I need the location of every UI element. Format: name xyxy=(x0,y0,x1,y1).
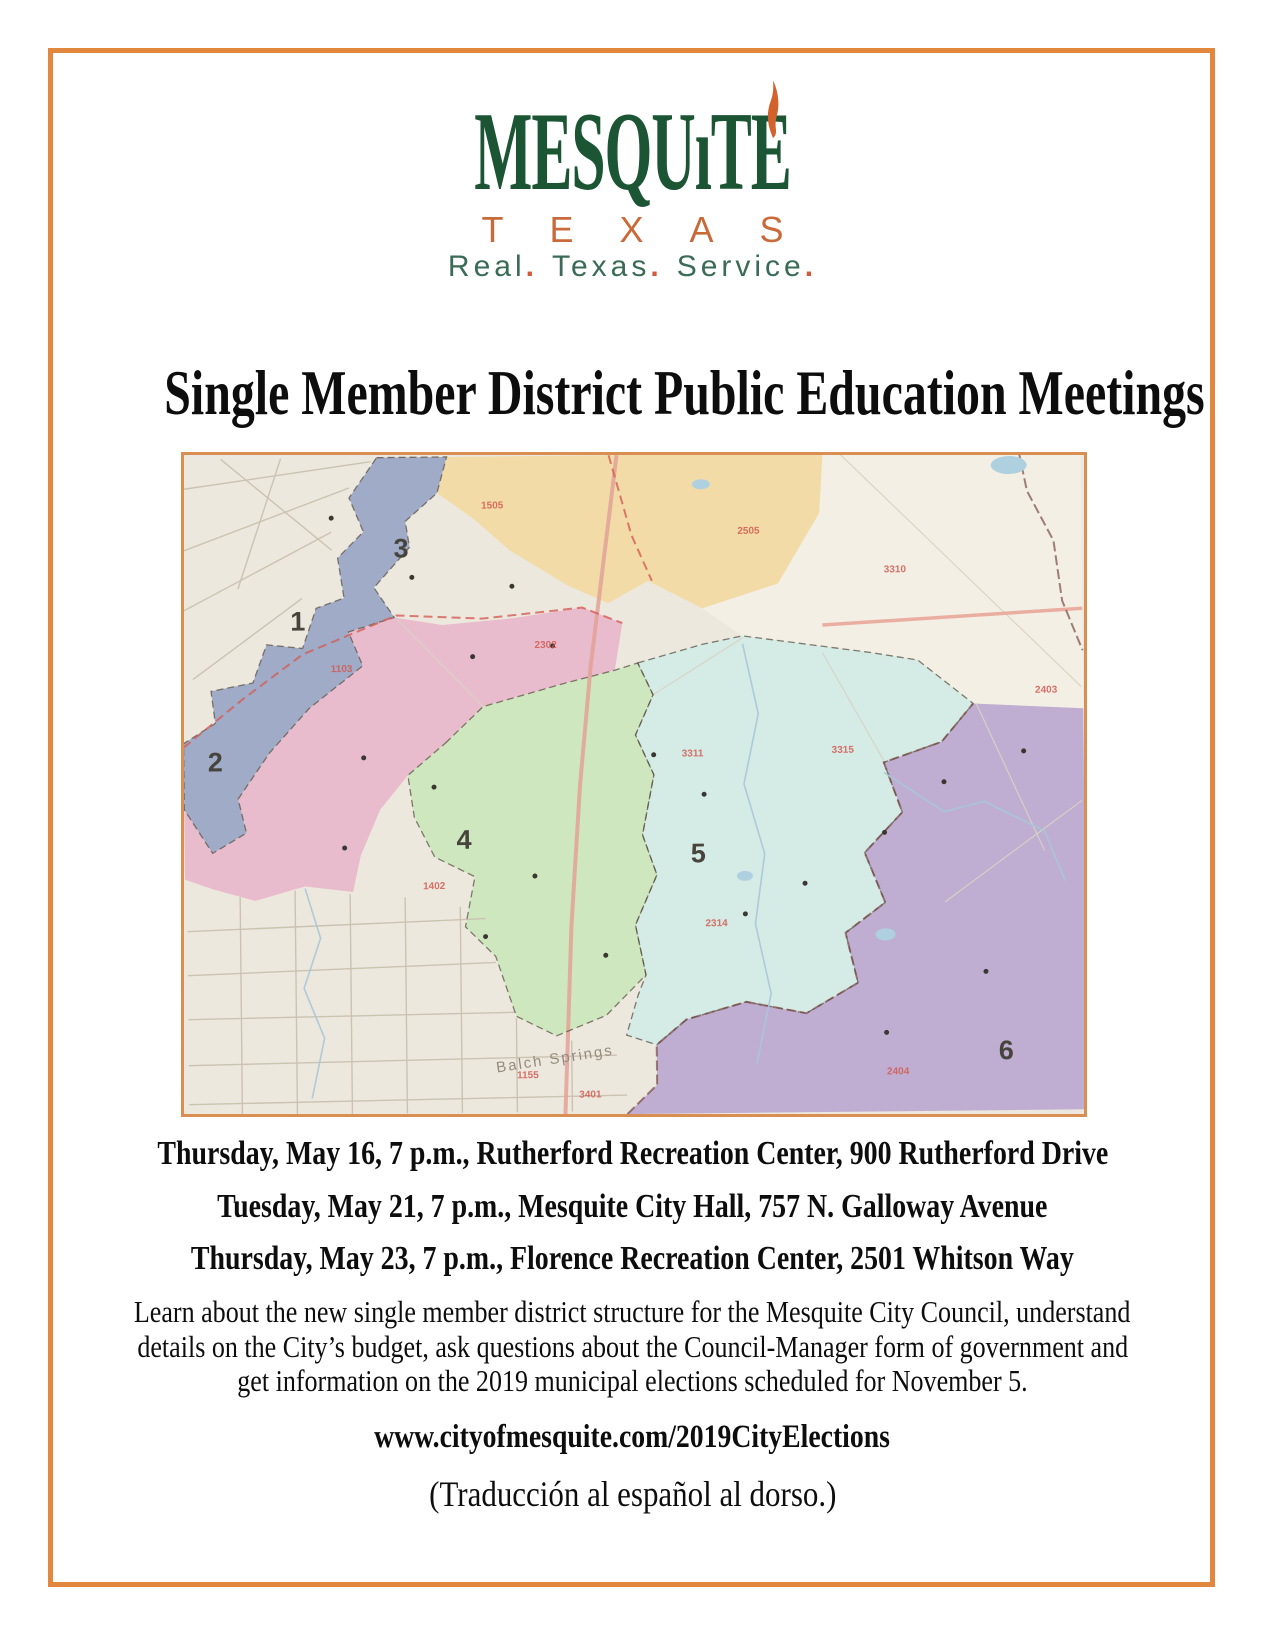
district-map: 123456Balch Springs150525053310110323023… xyxy=(181,452,1087,1117)
logo-wordmark: MESQUıTE xyxy=(285,96,981,208)
meeting-line-3: Thursday, May 23, 7 p.m., Florence Recre… xyxy=(0,1233,1265,1285)
meeting-line-1: Thursday, May 16, 7 p.m., Rutherford Rec… xyxy=(0,1128,1265,1180)
description-line-1: Learn about the new single member distri… xyxy=(0,1295,1265,1330)
description-text: get information on the 2019 municipal el… xyxy=(237,1364,1027,1399)
tagline-dot: . xyxy=(650,250,662,283)
tagline-word: Real xyxy=(448,250,526,283)
logo-tagline-row: Real.Texas.Service. xyxy=(0,252,1265,282)
description-text: details on the City’s budget, ask questi… xyxy=(137,1330,1128,1365)
meeting-text: Thursday, May 16, 7 p.m., Rutherford Rec… xyxy=(157,1128,1108,1180)
district-map-svg: 123456Balch Springs150525053310110323023… xyxy=(184,455,1084,1114)
translation-note: (Traducción al español al dorso.) xyxy=(429,1472,836,1516)
meeting-line-2: Tuesday, May 21, 7 p.m., Mesquite City H… xyxy=(0,1181,1265,1233)
logo-texas-row: TEXAS xyxy=(0,212,1265,248)
logo-word-pre: MESQU xyxy=(474,90,694,214)
description-line-3: get information on the 2019 municipal el… xyxy=(0,1364,1265,1399)
tagline-word: Texas xyxy=(552,250,650,283)
meeting-text: Thursday, May 23, 7 p.m., Florence Recre… xyxy=(191,1233,1074,1285)
photo-tint xyxy=(184,455,1084,1114)
logo: MESQUıTE xyxy=(0,96,1265,208)
logo-texas: TEXAS xyxy=(481,209,829,250)
logo-word-i: ı xyxy=(695,90,711,214)
website-row: www.cityofmesquite.com/2019CityElections xyxy=(0,1417,1265,1457)
website-url: www.cityofmesquite.com/2019CityElections xyxy=(375,1417,891,1457)
translation-row: (Traducción al español al dorso.) xyxy=(0,1472,1265,1516)
logo-tagline: Real.Texas.Service. xyxy=(448,250,817,283)
meeting-text: Tuesday, May 21, 7 p.m., Mesquite City H… xyxy=(217,1181,1047,1233)
flame-icon xyxy=(765,74,782,138)
tagline-dot: . xyxy=(526,250,538,283)
page-title: Single Member District Public Education … xyxy=(164,362,1204,425)
title-row: Single Member District Public Education … xyxy=(0,362,1265,425)
description-text: Learn about the new single member distri… xyxy=(134,1295,1131,1330)
description-line-2: details on the City’s budget, ask questi… xyxy=(0,1330,1265,1365)
tagline-word: Service xyxy=(677,250,805,283)
tagline-dot: . xyxy=(805,250,817,283)
